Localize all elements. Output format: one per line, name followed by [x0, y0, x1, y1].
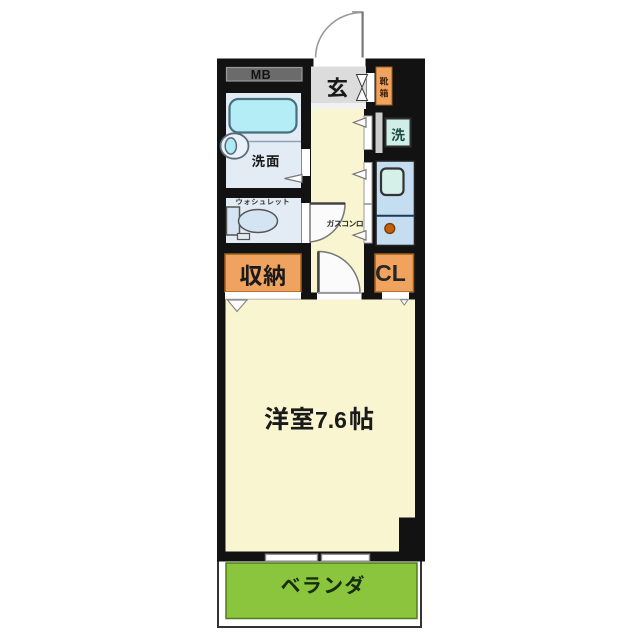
svg-text:MB: MB	[251, 68, 271, 82]
svg-text:CL: CL	[375, 260, 406, 286]
svg-text:7.6: 7.6	[315, 407, 347, 433]
